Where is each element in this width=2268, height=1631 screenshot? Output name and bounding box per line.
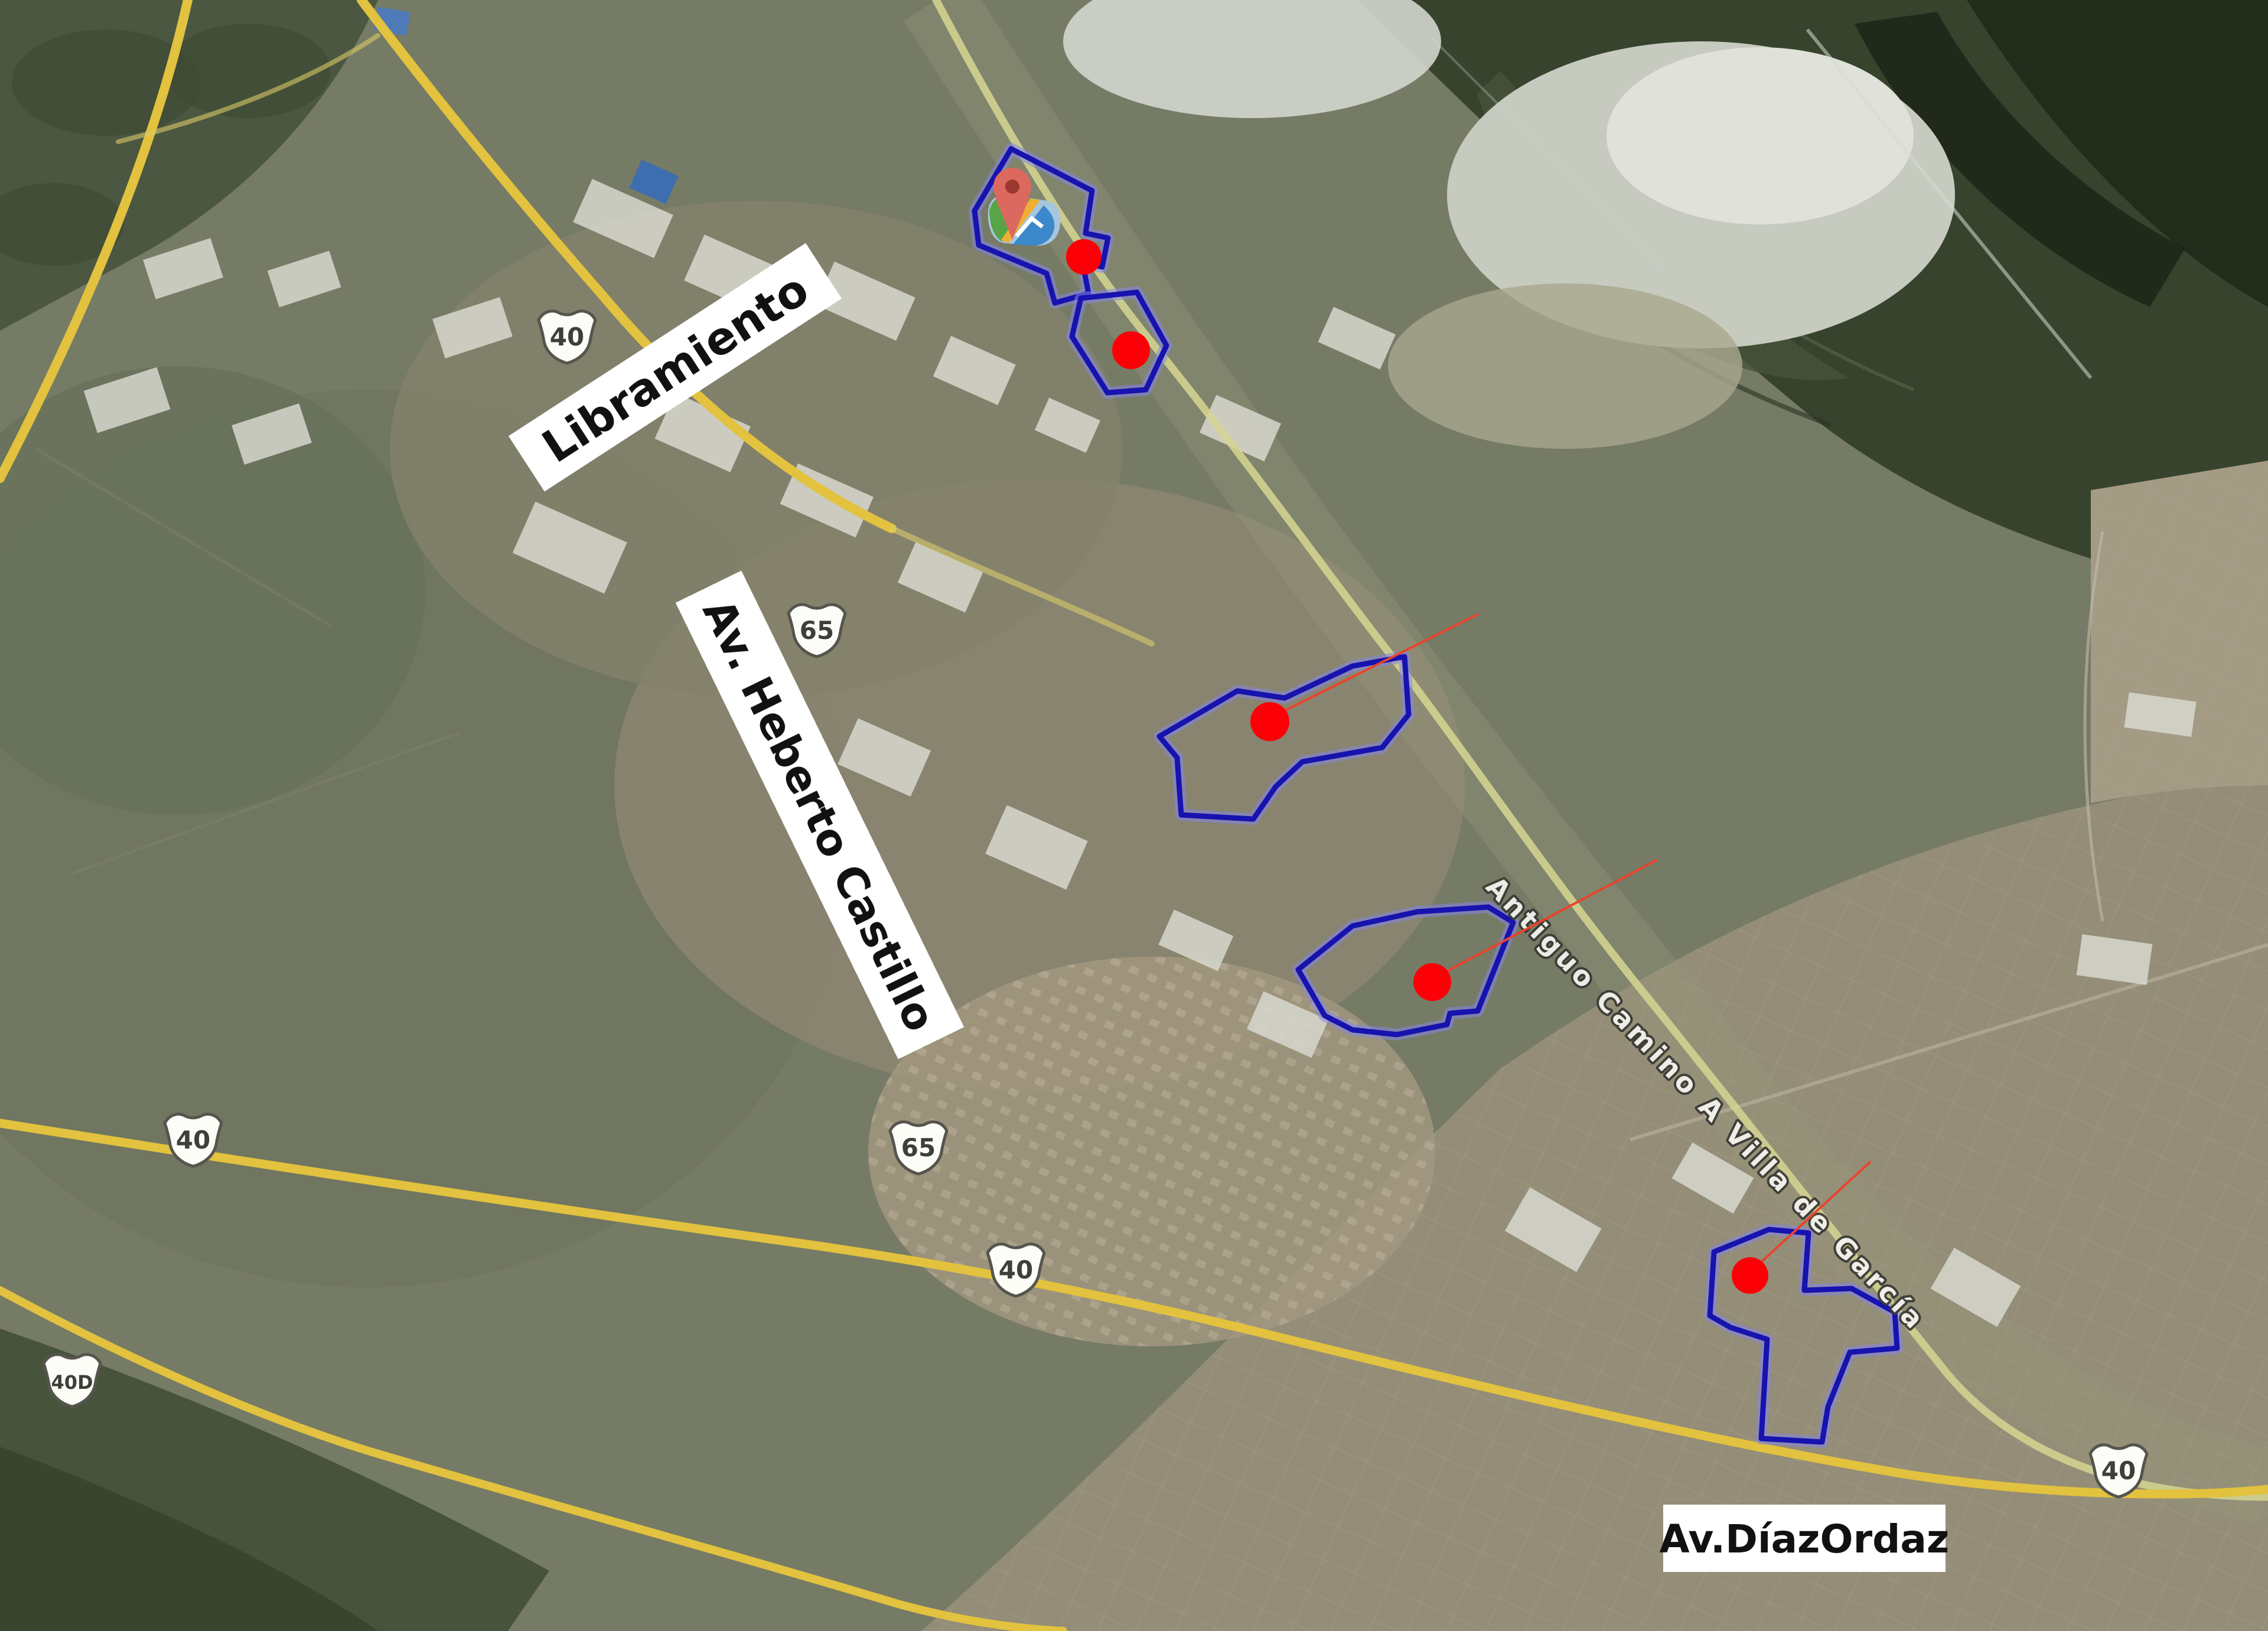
site-marker-dot — [1732, 1257, 1768, 1294]
svg-text:40: 40 — [176, 1126, 210, 1154]
annotated-satellite-map: Antiguo Camino A Villa de García40654065… — [0, 0, 2268, 1631]
svg-text:40: 40 — [550, 322, 584, 351]
site-marker-dot — [1066, 239, 1102, 275]
site-marker-dot — [1250, 702, 1289, 741]
road-label-av-diaz-ordaz: Av.DíazOrdaz — [1660, 1505, 1950, 1572]
svg-text:40D: 40D — [51, 1371, 93, 1394]
svg-text:Av.DíazOrdaz: Av.DíazOrdaz — [1660, 1516, 1950, 1562]
satellite-imagery — [0, 0, 2268, 1631]
svg-text:40: 40 — [2101, 1456, 2136, 1485]
svg-text:40: 40 — [999, 1255, 1033, 1284]
svg-text:65: 65 — [901, 1133, 936, 1162]
map-image: Antiguo Camino A Villa de García40654065… — [0, 0, 2268, 1631]
site-marker-dot — [1112, 331, 1150, 369]
site-marker-dot — [1413, 963, 1451, 1001]
svg-text:65: 65 — [800, 616, 834, 645]
